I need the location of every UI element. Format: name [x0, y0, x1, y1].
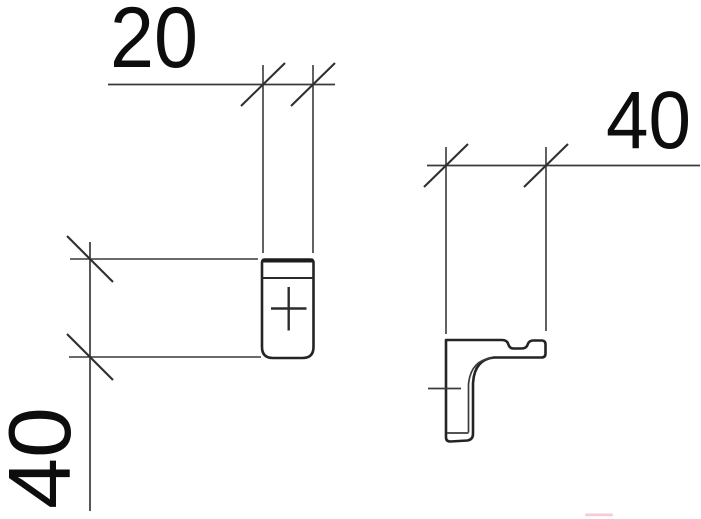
dimension-right-depth: 40 — [424, 75, 700, 334]
dimension-label-right-depth: 40 — [606, 75, 691, 166]
dimension-label-top-width: 20 — [110, 0, 198, 86]
side-view-outline — [446, 340, 546, 442]
dimension-top-width: 20 — [108, 0, 335, 253]
dimension-label-left-height: 40 — [0, 407, 89, 509]
dimension-left-height: 40 — [0, 236, 261, 511]
drawing-page: 20 40 40 — [0, 0, 701, 519]
side-view-hook — [428, 340, 546, 442]
front-view-hook — [262, 260, 314, 359]
stray-pink-mark — [585, 514, 613, 517]
technical-drawing-canvas: 20 40 40 — [0, 0, 701, 519]
